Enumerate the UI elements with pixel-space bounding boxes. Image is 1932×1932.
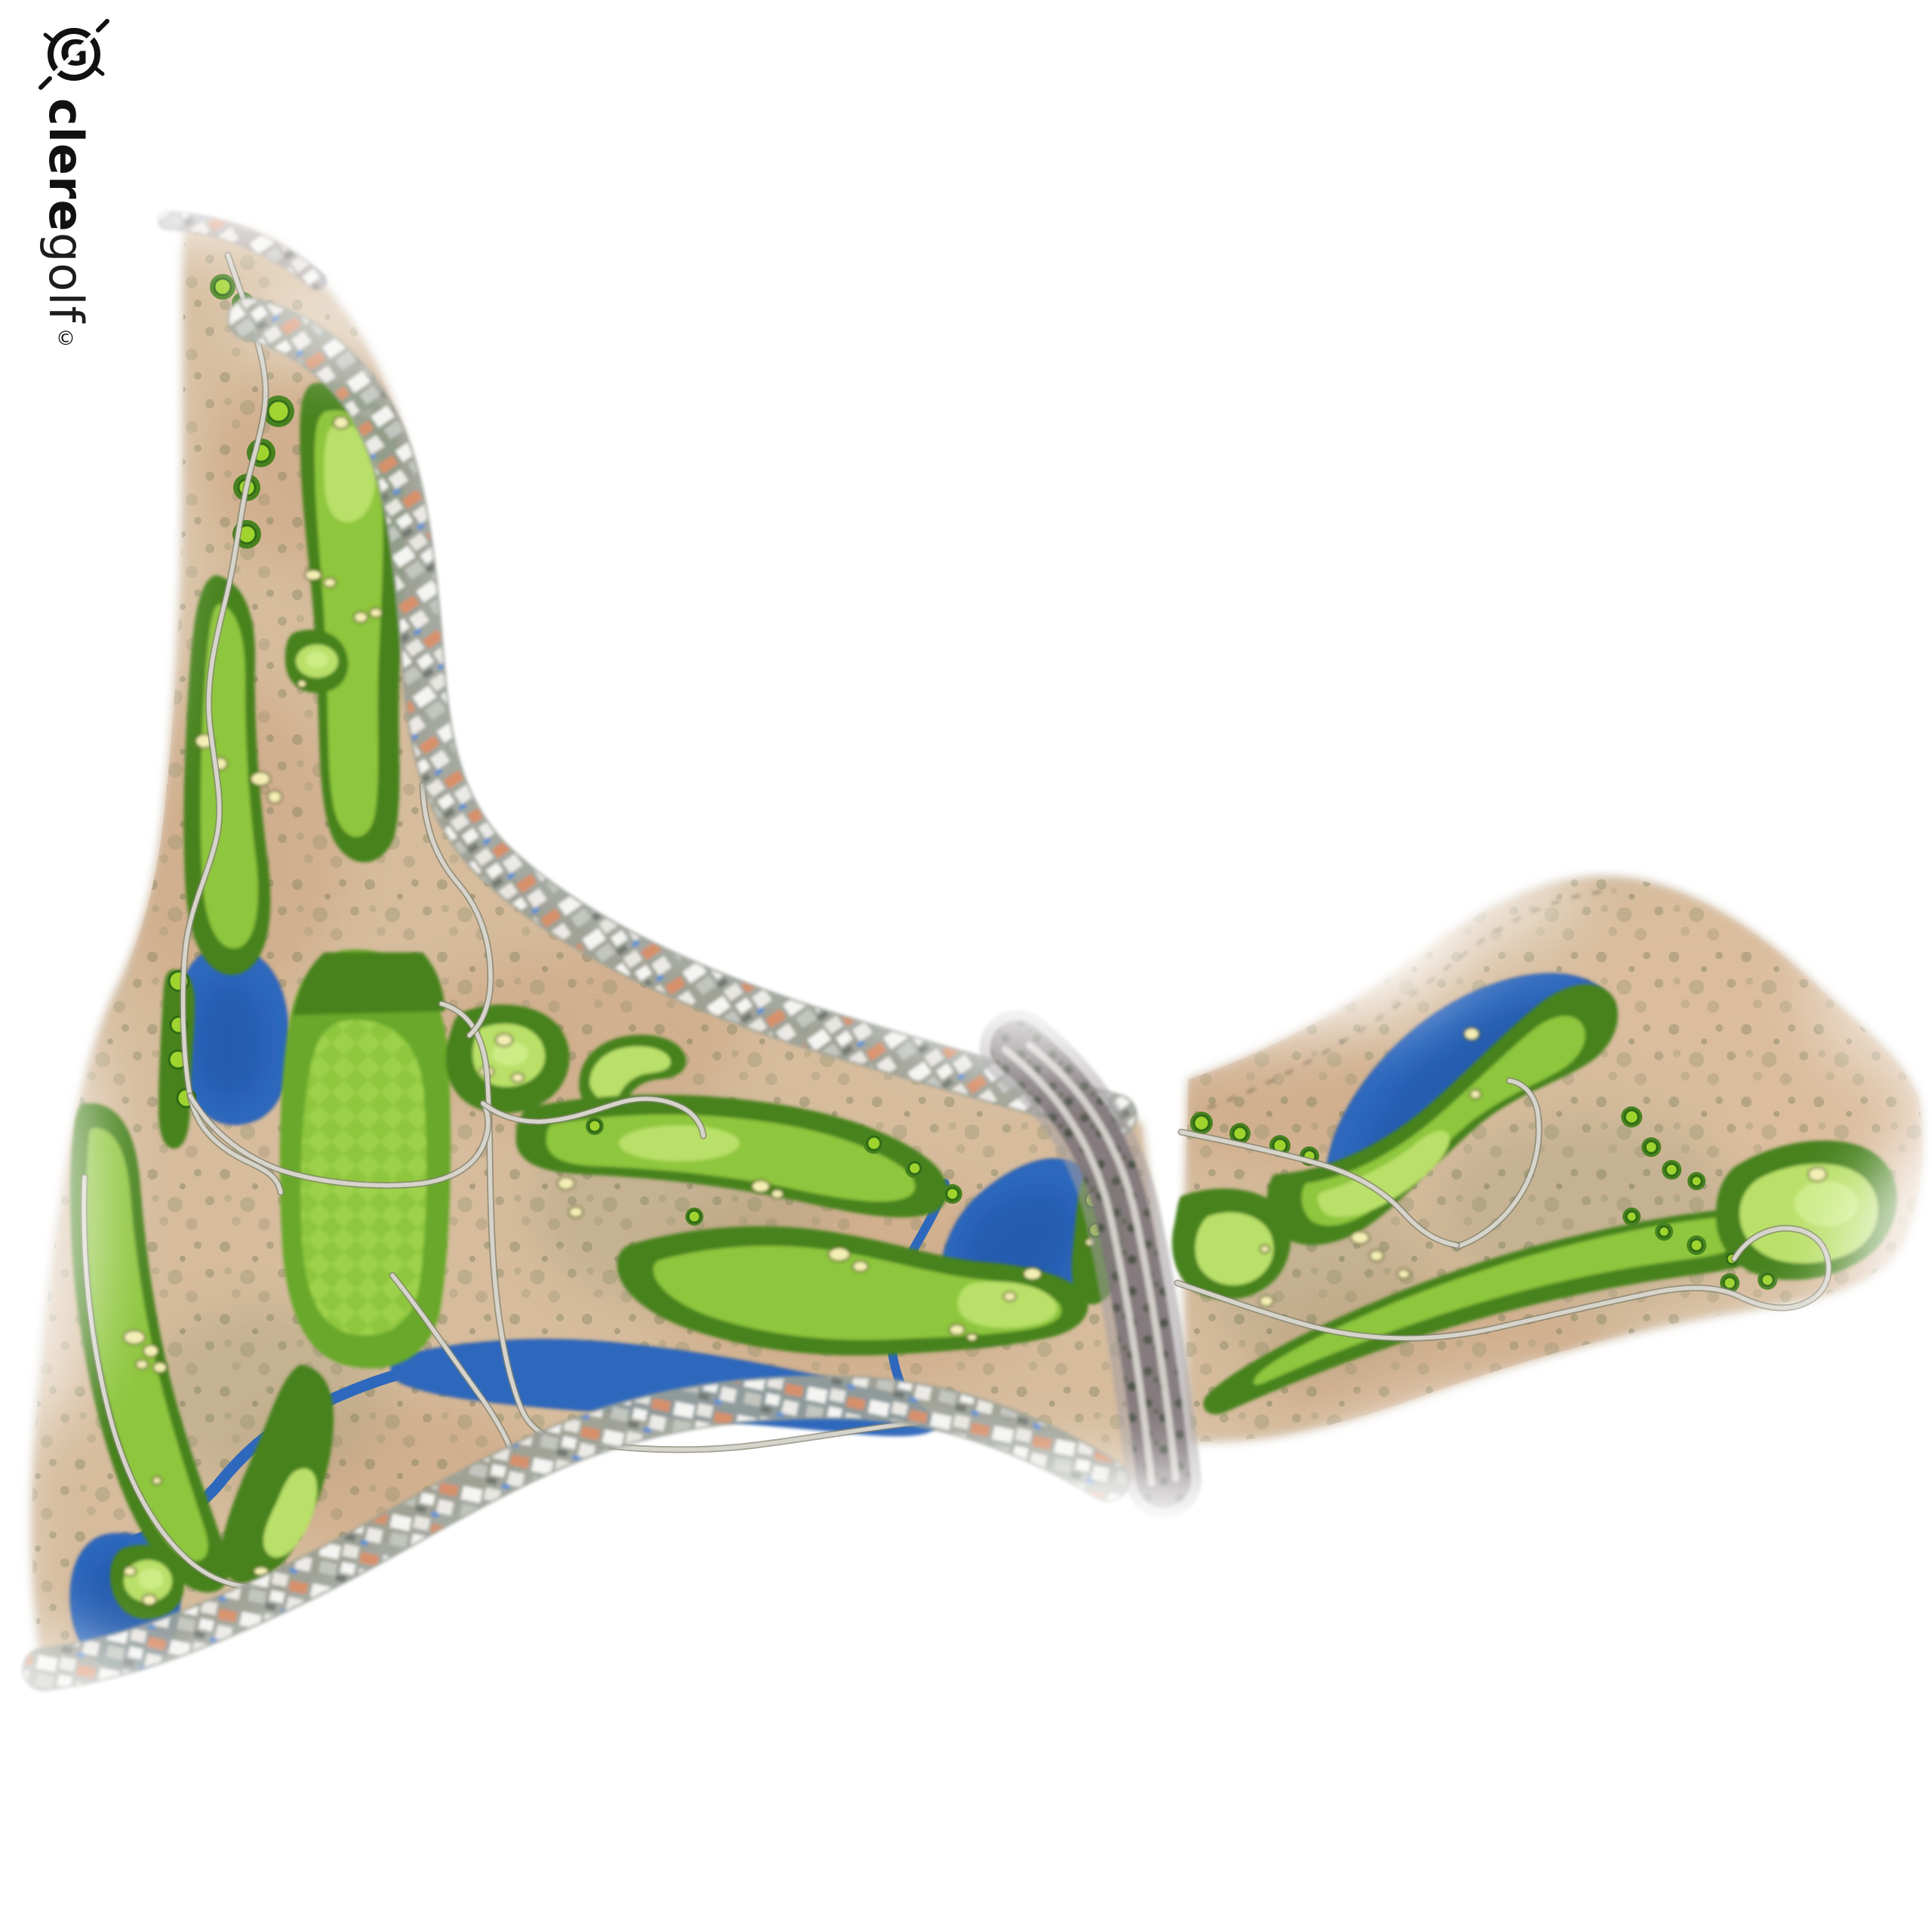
brand-trademark-symbol: © (54, 328, 77, 351)
brand-name-secondary: golf (38, 232, 94, 323)
brand-mark-icon: G (38, 18, 110, 91)
brand-wordmark: cleregolf© (42, 98, 89, 423)
driving-range (280, 949, 451, 1368)
mark-tick-sw (41, 78, 50, 88)
golf-masterplan-page: G cleregolf© (0, 0, 1932, 1932)
mark-tick-se (95, 68, 103, 74)
golf-course-map (0, 0, 1932, 1932)
mark-tick-nw (45, 35, 53, 41)
brand-name-primary: clere (38, 98, 94, 232)
lake-west-shading (195, 981, 266, 1100)
mark-tick-ne (98, 21, 107, 30)
brand-logo: G cleregolf© (32, 18, 145, 441)
